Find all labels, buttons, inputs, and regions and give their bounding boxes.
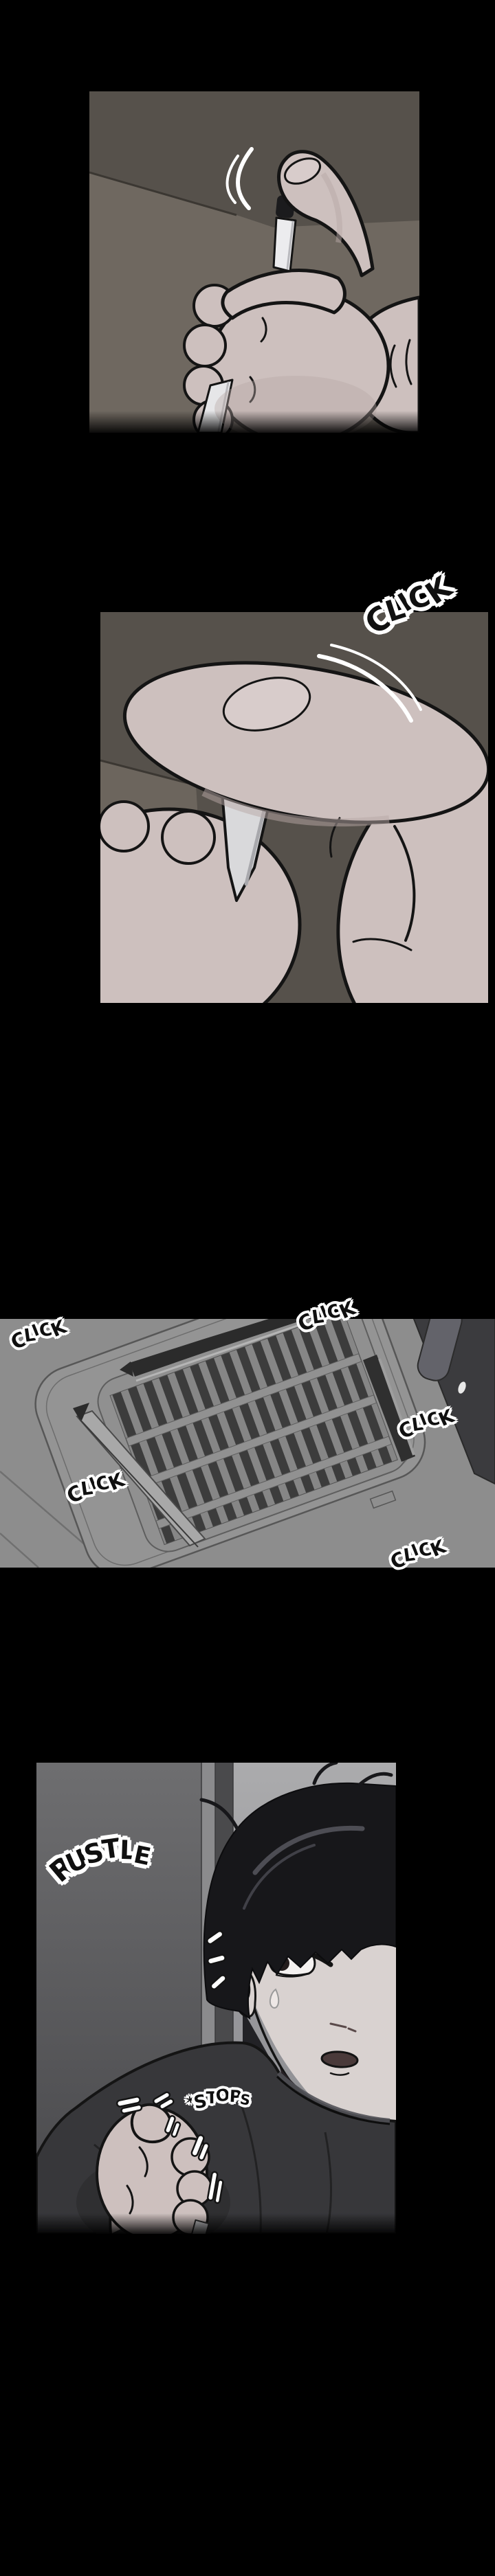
- panel-3: [0, 1319, 495, 1568]
- knuckle: [100, 802, 148, 851]
- comic-page: CLICK CLICK CLICK CLICK CLICK CLICK RUST…: [0, 0, 495, 2576]
- panel-2-art: [100, 612, 488, 1003]
- panel-2: [100, 612, 488, 1003]
- panel-4: [36, 1763, 396, 2234]
- panel-1: [89, 91, 419, 433]
- bottom-fade: [89, 411, 419, 433]
- bottom-fade: [36, 2213, 396, 2234]
- panel-1-art: [89, 91, 419, 433]
- panel-4-art: [36, 1763, 396, 2234]
- knuckle: [162, 811, 214, 863]
- panel-3-art: [0, 1319, 495, 1568]
- knuckle: [184, 325, 225, 366]
